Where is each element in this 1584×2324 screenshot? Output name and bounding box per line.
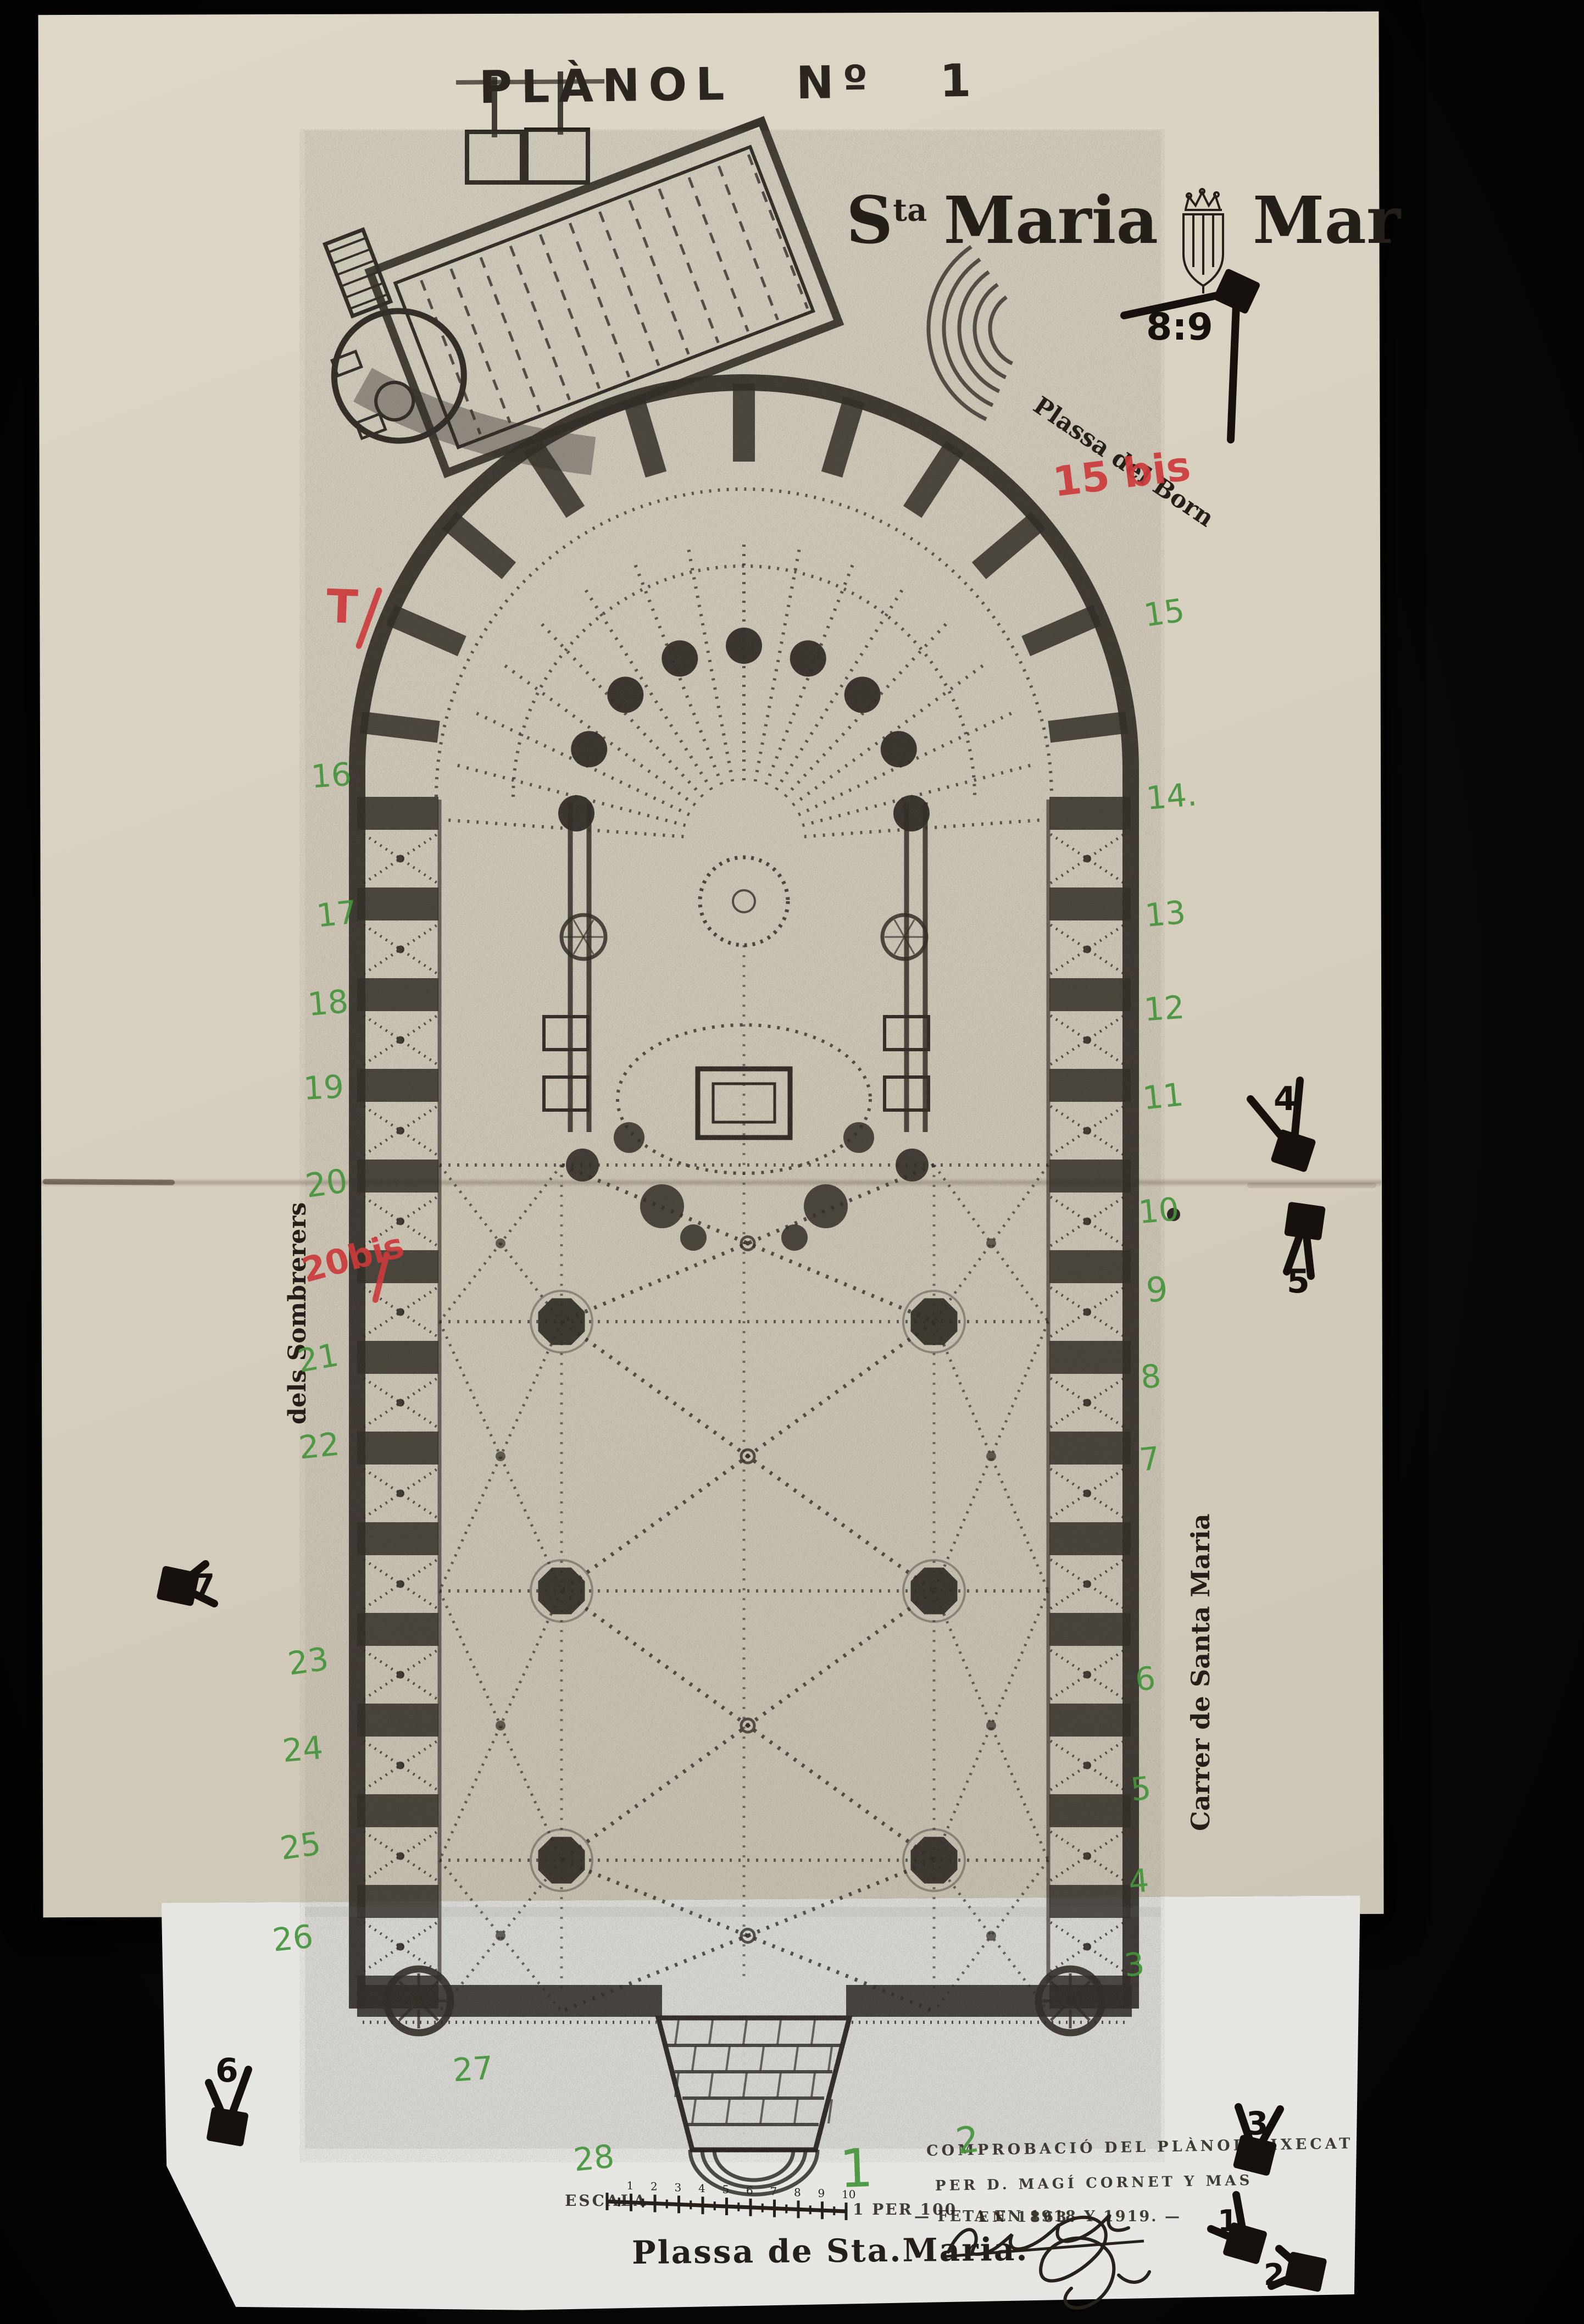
church-title-mar: Mar [1253,188,1400,253]
crowned-shield-icon [1175,188,1236,296]
chapel-number-2: 2 [954,2121,982,2160]
chapel-number-9: 9 [1145,1272,1169,1308]
chapel-number-5: 5 [1129,1772,1153,1806]
paper-sheet-main [38,12,1383,1917]
paper-fold-crease [41,1178,1381,1187]
church-title: Sta Maria Mar [846,188,1400,296]
church-title-sta: Sta [846,188,927,253]
fold-mark-right [1247,1183,1376,1188]
chapel-number-4: 4 [1127,1865,1151,1898]
street-label-plassa-de-sta-maria: Plassa de Sta.Maria. [632,2231,1029,2271]
church-title-maria: Maria [943,188,1158,253]
page-title: PLÀNOL Nº 1 [479,55,980,114]
red-note-T: T [326,583,359,630]
chapel-number-28: 28 [572,2140,615,2176]
street-label-dels-sombrerers: dels Sombrerers [284,1202,312,1424]
street-label-carrer-de-santa-maria: Carrer de Santa Maria [1186,1513,1215,1831]
fold-mark-left [43,1179,175,1185]
chapel-number-19: 19 [303,1071,345,1105]
chapel-number-6: 6 [1134,1662,1157,1696]
chapel-number-18: 18 [307,985,350,1020]
chapel-number-16: 16 [310,758,353,792]
chapel-number-24: 24 [281,1732,325,1767]
chapel-number-15: 15 [1142,594,1186,631]
chapel-number-27: 27 [452,2051,494,2086]
chapel-number-17: 17 [315,896,358,931]
chapel-number-1: 1 [838,2142,874,2195]
chapel-number-26: 26 [271,1920,314,1956]
scale-label: ESCALA [565,2192,648,2210]
chapel-number-23: 23 [286,1643,330,1680]
chapel-number-25: 25 [278,1827,323,1865]
chapel-number-20: 20 [303,1164,349,1203]
photo-of-archival-plan: PLÀNOL Nº 1 Sta Maria Mar Plassa del Bor… [0,0,1584,2324]
chapel-number-10: 10 [1137,1193,1181,1228]
chapel-number-8: 8 [1140,1360,1163,1394]
chapel-number-11: 11 [1141,1078,1185,1114]
survey-date-note: — FETA EN 1918 Y 1919. — [914,2208,1181,2225]
chapel-number-14: 14. [1145,778,1198,814]
chapel-number-12: 12 [1143,991,1186,1025]
chapel-number-22: 22 [297,1428,341,1463]
chapel-number-13: 13 [1144,896,1187,931]
chapel-number-7: 7 [1138,1442,1161,1476]
chapel-number-21: 21 [296,1339,341,1377]
chapel-number-3: 3 [1122,1948,1146,1982]
